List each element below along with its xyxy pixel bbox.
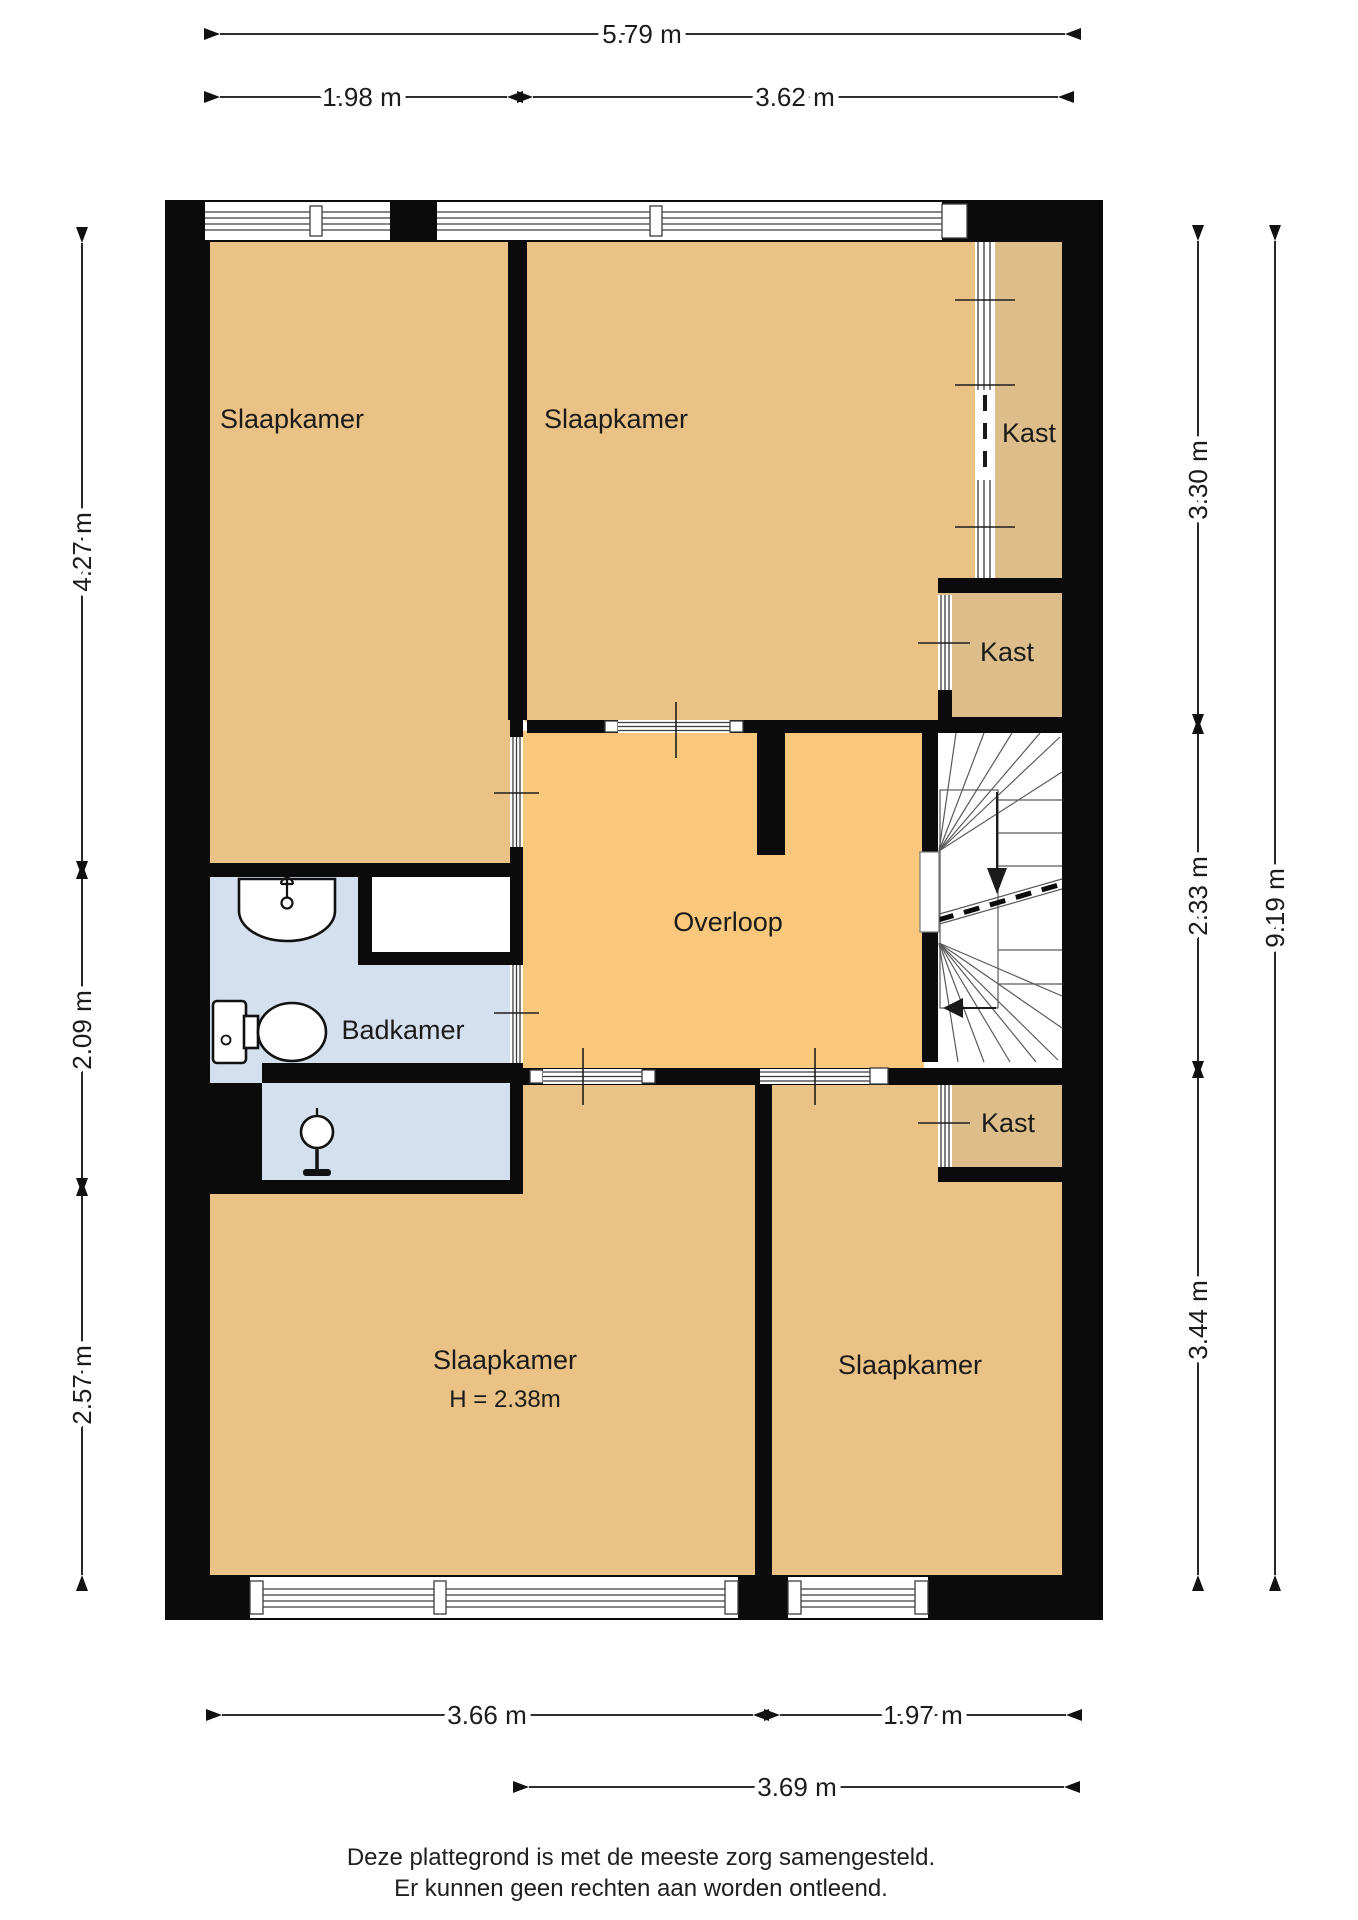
wall-kast-middle-bandcap	[938, 690, 952, 717]
window-end-block	[788, 1581, 801, 1614]
label-slaapkamer-top-left: Slaapkamer	[220, 404, 364, 434]
label-slaapkamer-top-middle: Slaapkamer	[544, 404, 688, 434]
window-end-block	[250, 1581, 263, 1614]
wall-exterior-right	[1062, 200, 1103, 1620]
window-mullion	[434, 1581, 446, 1614]
dim-left-top: 4.27 m	[67, 512, 97, 592]
dim-left-bottom: 2.57 m	[67, 1345, 97, 1425]
dim-bottom-left: 3.66 m	[447, 1700, 527, 1730]
window-top-left	[205, 202, 390, 240]
wall-stub-overloop	[757, 733, 785, 855]
label-slaapkamer-bottom-right: Slaapkamer	[838, 1350, 982, 1380]
dim-right-top: 3.30 m	[1183, 440, 1213, 520]
window-end-block	[942, 204, 967, 238]
dim-top-right: 3.62 m	[755, 82, 835, 112]
wall-badkamer-mid	[262, 1063, 510, 1083]
room-slaapkamer-top-middle	[525, 240, 977, 722]
window-bottom-right	[788, 1577, 928, 1618]
room-slaapkamer-bottom-left	[210, 1194, 755, 1575]
wall-kast-middle-bottom	[938, 717, 1062, 733]
dim-right-bottom: 3.44 m	[1183, 1280, 1213, 1360]
void-space	[372, 877, 510, 952]
label-height-note: H = 2.38m	[449, 1386, 560, 1413]
room-slaapkamer-bottom-left-ext	[523, 1085, 755, 1194]
window-end-block	[725, 1581, 738, 1614]
dim-left-middle: 2.09 m	[67, 990, 97, 1070]
wall-divider-bottom-rooms	[755, 1085, 772, 1575]
window-end-block	[915, 1581, 928, 1614]
label-overloop: Overloop	[673, 907, 783, 937]
label-kast-bottom: Kast	[981, 1108, 1036, 1138]
dim-right-total: 9.19 m	[1260, 868, 1290, 948]
dim-top-left: 1.98 m	[322, 82, 402, 112]
wall-void-bottom	[372, 952, 510, 965]
window-bottom-left	[250, 1577, 738, 1618]
label-kast-top: Kast	[1002, 418, 1057, 448]
floorplan-page: Slaapkamer Slaapkamer Kast Kast Overloop…	[0, 0, 1358, 1920]
sink	[239, 878, 335, 941]
wall-badkamer-top	[210, 863, 510, 877]
floorplan-svg: Slaapkamer Slaapkamer Kast Kast Overloop…	[0, 0, 1358, 1920]
wall-void-left	[358, 877, 372, 965]
window-top-right	[437, 202, 967, 240]
label-slaapkamer-bottom-left: Slaapkamer	[433, 1345, 577, 1375]
label-badkamer: Badkamer	[341, 1015, 464, 1045]
window-mullion	[310, 206, 322, 236]
wall-kast-bottom-bottom	[938, 1167, 1062, 1182]
toilet	[213, 1001, 326, 1063]
wall-badkamer-bottom	[210, 1180, 523, 1194]
window-mullion	[650, 206, 662, 236]
wall-exterior-left	[165, 200, 210, 1620]
footer-disclaimer-line1: Deze plattegrond is met de meeste zorg s…	[347, 1844, 935, 1871]
dim-top-total: 5.79 m	[602, 19, 682, 49]
dim-bottom-right: 1.97 m	[883, 1700, 963, 1730]
footer-disclaimer-line2: Er kunnen geen rechten aan worden ontlee…	[394, 1875, 888, 1902]
label-kast-middle: Kast	[980, 637, 1035, 667]
dim-bottom-total: 3.69 m	[757, 1772, 837, 1802]
room-overloop	[523, 731, 924, 1071]
wall-kast-top-bottom	[938, 578, 1062, 593]
dim-right-middle: 2.33 m	[1183, 856, 1213, 936]
stairs-door-opening	[920, 852, 939, 932]
wall-divider-top-rooms	[508, 242, 527, 720]
wall-badkamer-lower-left	[210, 1083, 262, 1180]
shower-base	[303, 1169, 331, 1176]
room-slaapkamer-top-left	[205, 240, 510, 865]
